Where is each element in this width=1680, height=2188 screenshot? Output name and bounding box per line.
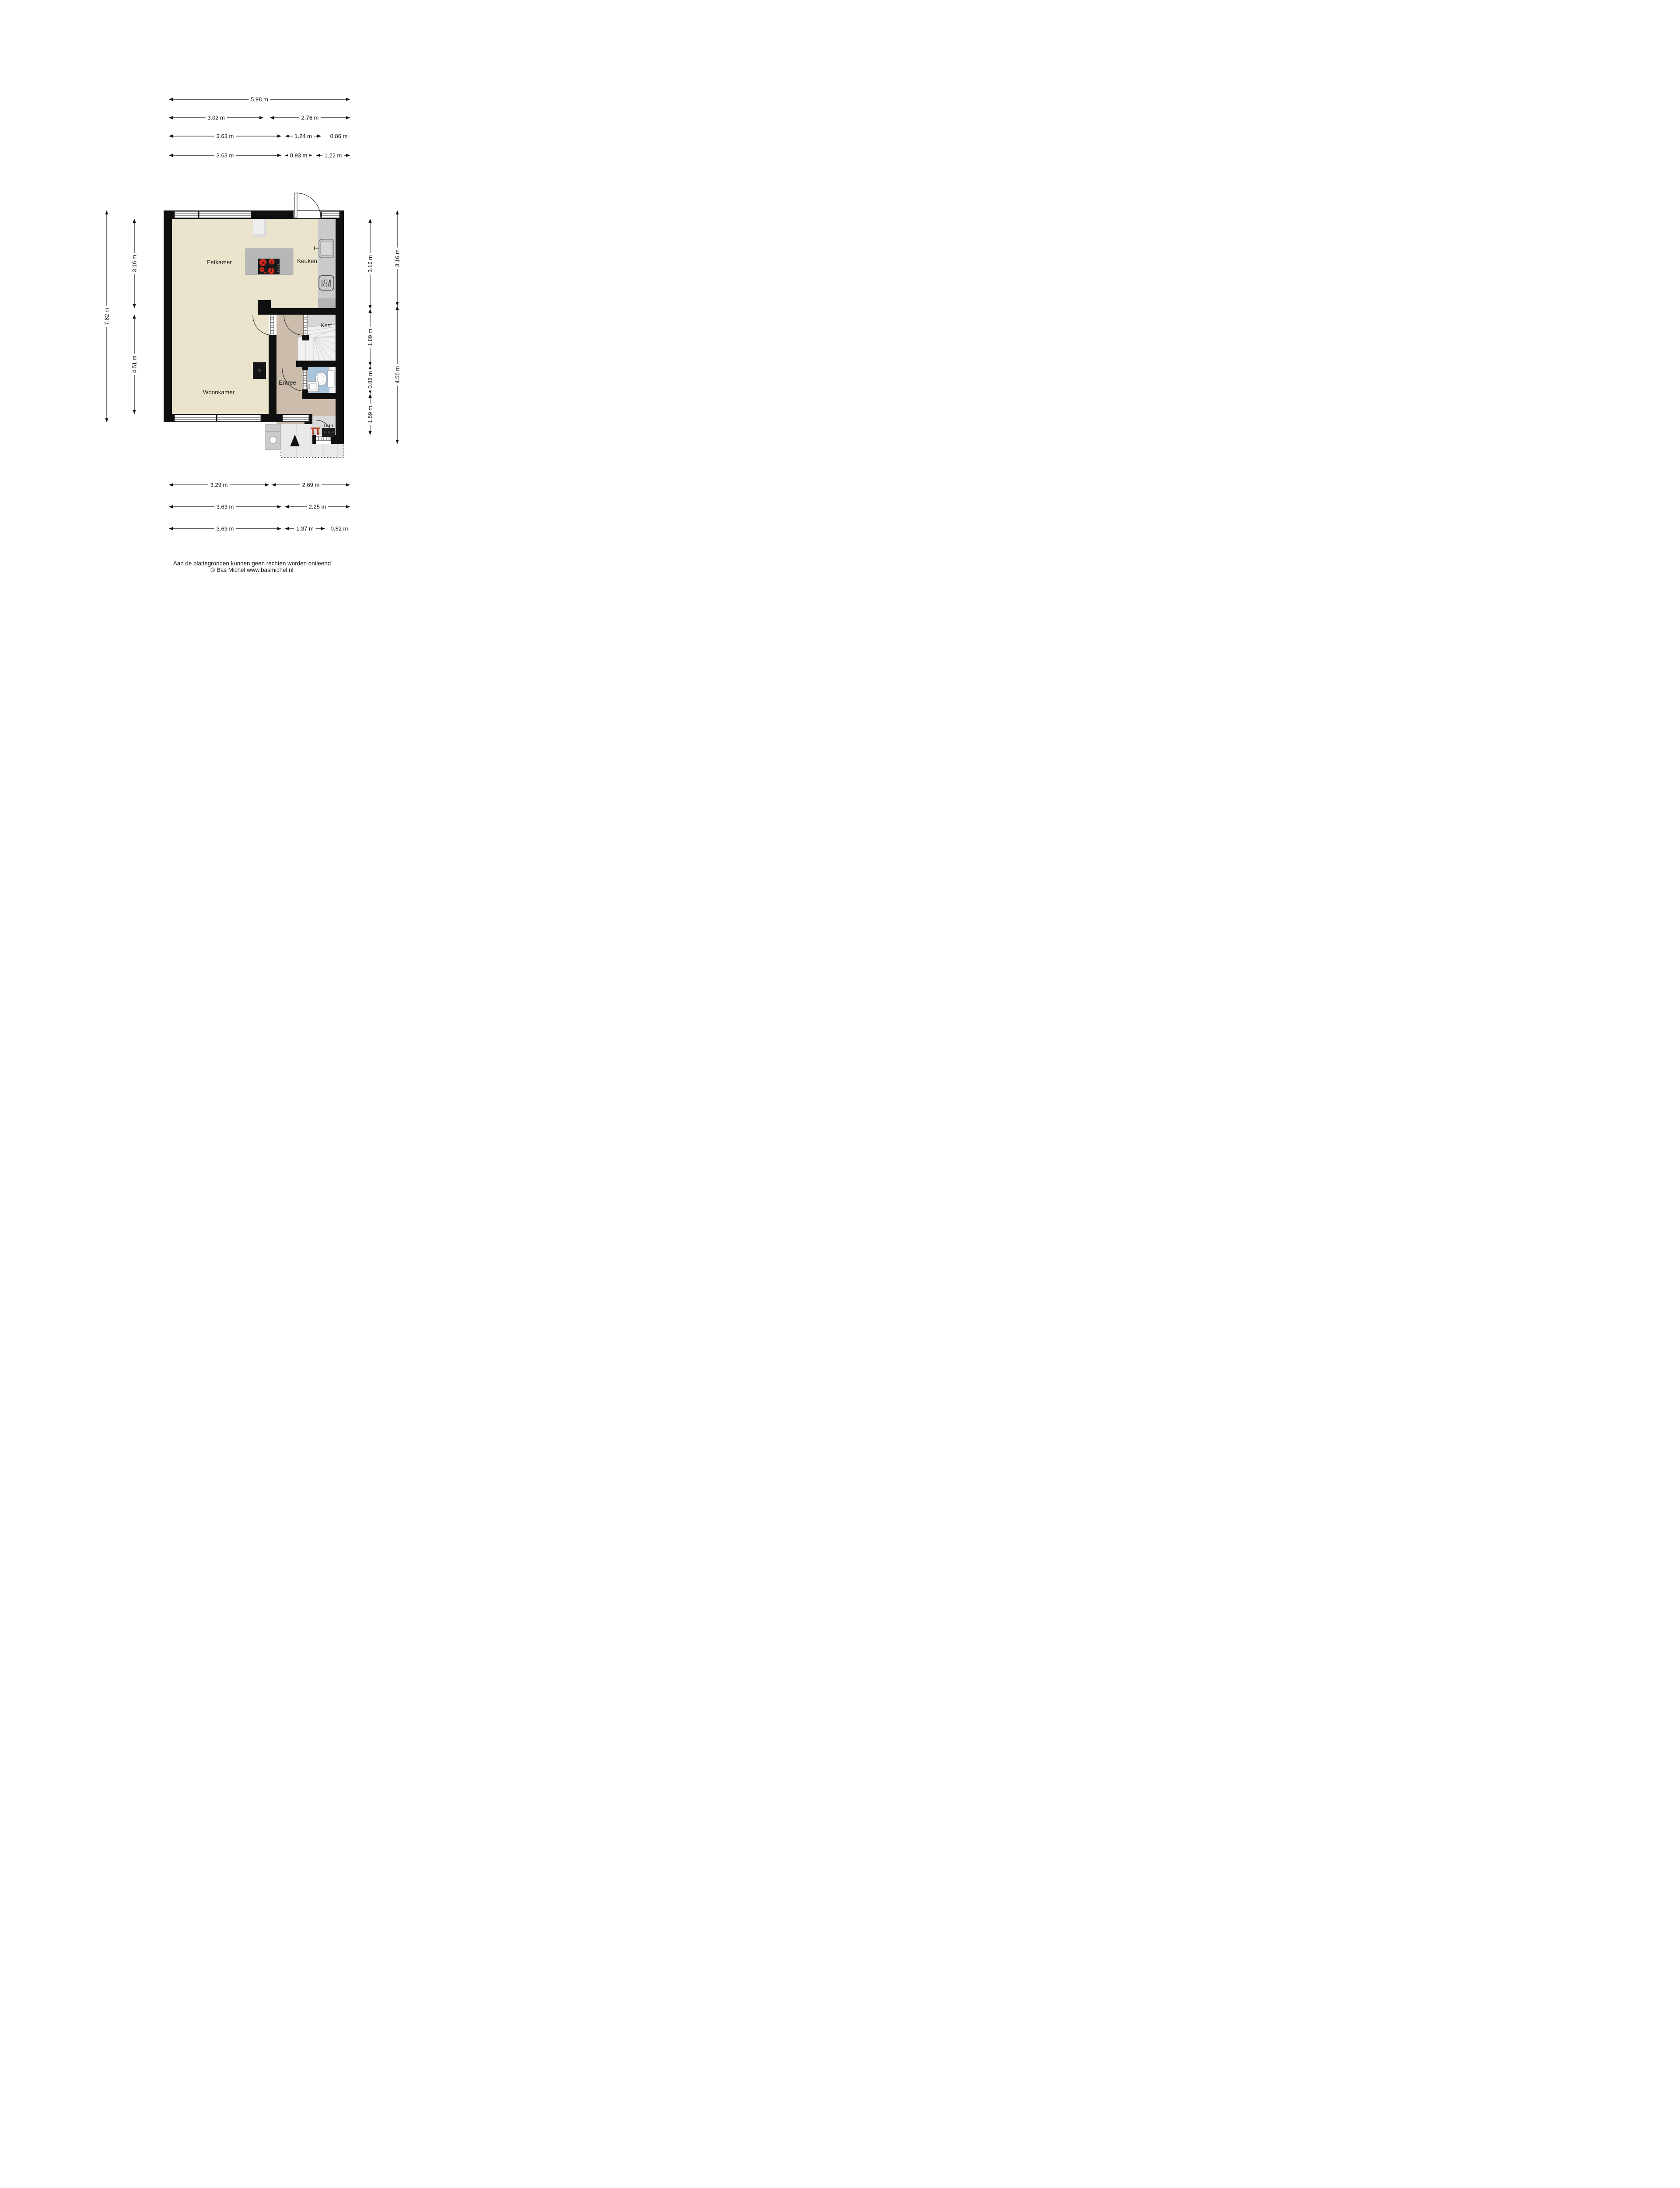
wall-woonkamer-entree: [269, 335, 276, 414]
room-label-entree: Entree: [279, 379, 296, 386]
window-bottom-right: [282, 415, 310, 421]
svg-text:2.76 m: 2.76 m: [301, 115, 319, 121]
svg-text:0.88 m: 0.88 m: [367, 371, 374, 389]
svg-text:3.16 m: 3.16 m: [367, 255, 374, 273]
svg-text:1.37 m: 1.37 m: [296, 526, 314, 532]
wood-stove-icon: [253, 362, 266, 379]
cooktop-4-burners-icon: [258, 259, 280, 274]
svg-text:1.59 m: 1.59 m: [367, 406, 374, 423]
svg-text:3.63 m: 3.63 m: [217, 526, 234, 532]
utility-box: [266, 424, 281, 450]
svg-text:0.86 m: 0.86 m: [330, 133, 348, 140]
washbasin-icon: [307, 382, 318, 392]
copyright-line: © Bas Michel www.basmichel.nl: [0, 567, 504, 573]
svg-text:3.29 m: 3.29 m: [210, 482, 228, 488]
disclaimer-line: Aan de plattegronden kunnen geen rechten…: [0, 560, 504, 567]
wall-stairs-toilet: [296, 361, 336, 367]
svg-text:3.02 m: 3.02 m: [207, 115, 225, 121]
porch-tiles-right: [312, 444, 344, 457]
room-label-woonkamer: Woonkamer: [203, 389, 235, 396]
svg-text:1.22 m: 1.22 m: [325, 152, 342, 159]
counter-run: [318, 219, 336, 308]
counter-end: [318, 298, 336, 308]
window-top-left: [174, 211, 252, 218]
svg-text:3.63 m: 3.63 m: [217, 152, 234, 159]
svg-text:3.63 m: 3.63 m: [217, 504, 234, 510]
svg-text:1.24 m: 1.24 m: [294, 133, 312, 140]
svg-text:2.69 m: 2.69 m: [302, 482, 320, 488]
toilet-room: [307, 367, 336, 393]
disclaimer: Aan de plattegronden kunnen geen rechten…: [0, 560, 504, 573]
svg-text:3.16 m: 3.16 m: [131, 255, 138, 272]
window-bottom-left: [174, 415, 262, 421]
doorbell-icon: [269, 436, 276, 443]
cooking-island: [245, 249, 293, 275]
svg-text:5.98 m: 5.98 m: [251, 96, 268, 103]
room-label-keuken: Keuken: [297, 258, 317, 264]
svg-text:1.89 m: 1.89 m: [367, 329, 374, 346]
svg-text:4.51 m: 4.51 m: [131, 356, 138, 373]
svg-text:2.25 m: 2.25 m: [309, 504, 326, 510]
wall-keuken-divider: [258, 308, 336, 315]
svg-text:4.56 m: 4.56 m: [394, 366, 401, 384]
room-label-eetkamer: Eetkamer: [206, 259, 232, 266]
svg-text:3.16 m: 3.16 m: [394, 249, 401, 267]
svg-text:0.82 m: 0.82 m: [331, 526, 348, 532]
window-top-right: [321, 211, 340, 218]
chimney: [253, 219, 266, 237]
wall-left: [164, 210, 172, 422]
wall-right: [336, 210, 344, 446]
floorplan-page: Eetkamer Keuken Woonkamer Entree Kast 5.…: [0, 0, 504, 672]
garden-door-opening: [294, 211, 321, 218]
svg-text:7.82 m: 7.82 m: [104, 308, 110, 325]
wall-toilet-stub-top: [302, 367, 308, 370]
wall-toilet-bottom: [302, 393, 336, 399]
room-label-kast: Kast: [321, 323, 332, 329]
svg-text:3.63 m: 3.63 m: [217, 133, 234, 140]
wall-nub: [258, 300, 271, 309]
svg-text:0.93 m: 0.93 m: [290, 152, 308, 159]
wall-kast-post: [302, 335, 309, 340]
